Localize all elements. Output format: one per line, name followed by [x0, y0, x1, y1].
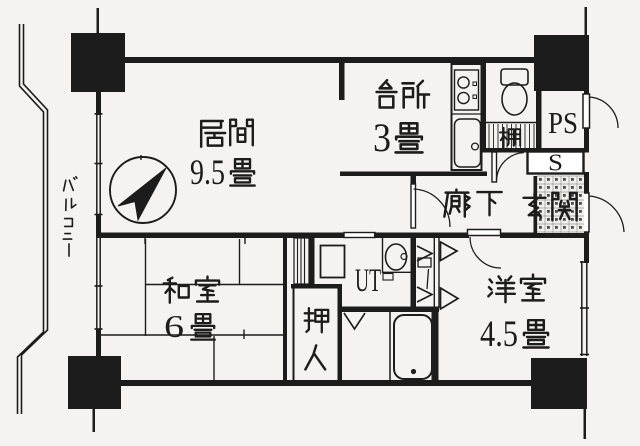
svg-text:PS: PS: [548, 105, 578, 140]
svg-text:S: S: [548, 151, 563, 177]
svg-text:9.5: 9.5: [190, 152, 225, 192]
svg-text:UT: UT: [355, 263, 381, 299]
svg-text:6: 6: [164, 308, 184, 344]
svg-text:3: 3: [373, 115, 391, 160]
svg-text:4.5: 4.5: [480, 314, 518, 355]
